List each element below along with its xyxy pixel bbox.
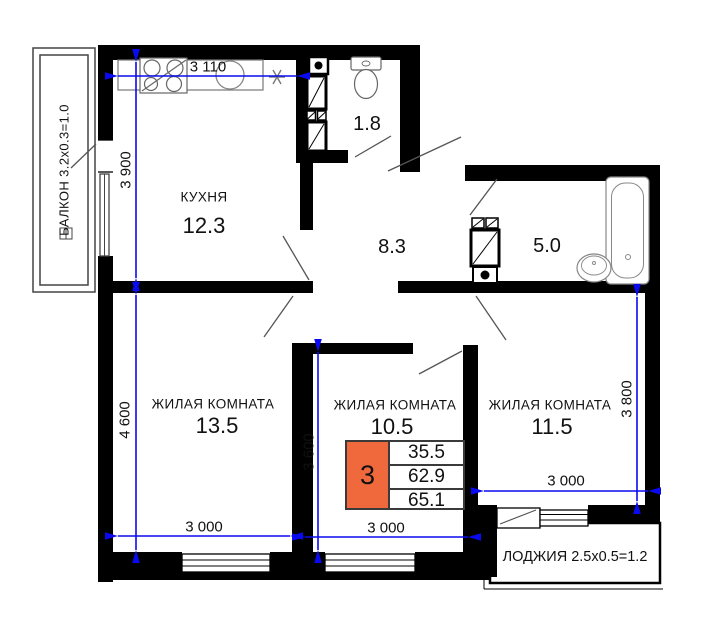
apartment-info-box: 3 35.5 62.9 65.1 (345, 440, 465, 510)
floor-plan-canvas (0, 0, 714, 639)
dim-living1-depth: 4 600 (118, 401, 133, 439)
info-box-living-area: 35.5 (390, 442, 463, 466)
hallway-area: 8.3 (378, 237, 406, 257)
wc-area: 1.8 (353, 114, 381, 134)
dim-living3-depth: 3 800 (620, 380, 635, 418)
info-box-total-area: 65.1 (390, 490, 463, 512)
living-room-3-label: ЖИЛАЯ КОМНАТА (489, 398, 612, 412)
loggia-label: ЛОДЖИЯ 2.5x0.5=1.2 (503, 550, 648, 565)
living-room-1-label: ЖИЛАЯ КОМНАТА (152, 397, 275, 411)
bathroom-area: 5.0 (533, 236, 561, 256)
dim-kitchen-width: 3 110 (190, 60, 226, 75)
info-box-room-count: 3 (347, 442, 390, 508)
toilet-icon (351, 57, 381, 99)
floor-plan: БАЛКОН 3.2x0.3=1.0 КУХНЯ 12.3 1.8 8.3 5.… (0, 0, 714, 639)
bathroom-sink-icon (577, 254, 611, 282)
dim-living1-width: 3 000 (185, 520, 223, 535)
dim-kitchen-depth: 3 900 (119, 151, 134, 189)
living-room-2-label: ЖИЛАЯ КОМНАТА (334, 398, 457, 412)
dim-living2-depth: 3 600 (302, 433, 317, 471)
vent-asterisk-icon (269, 70, 285, 84)
dim-living3-width: 3 000 (547, 474, 585, 489)
info-box-apartment-area: 62.9 (390, 466, 463, 490)
living-room-2-area: 10.5 (371, 416, 414, 438)
kitchen-area: 12.3 (183, 215, 226, 237)
living-room-1-area: 13.5 (196, 415, 239, 437)
bathtub-icon (606, 177, 649, 284)
dim-living2-width: 3 000 (367, 521, 405, 536)
kitchen-label: КУХНЯ (180, 190, 227, 204)
windows (98, 140, 588, 572)
balcony-label: БАЛКОН 3.2x0.3=1.0 (58, 104, 71, 236)
living-room-3-area: 11.5 (531, 416, 572, 438)
